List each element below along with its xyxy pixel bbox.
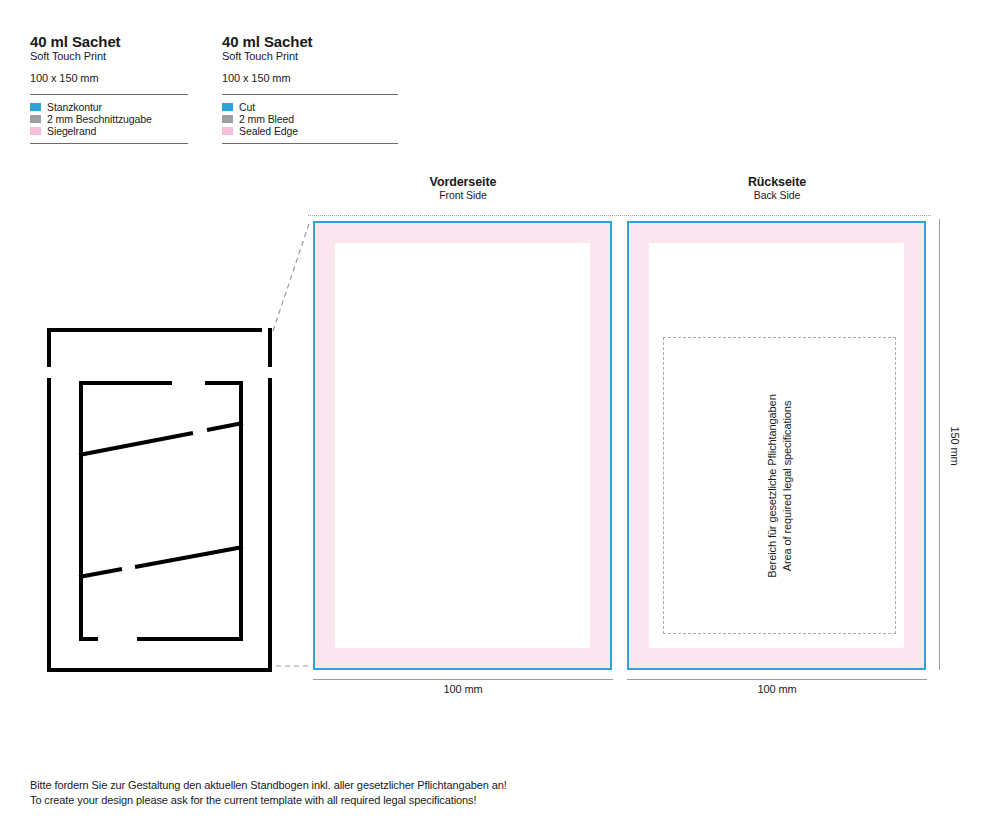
legal-label-de: Bereich für gesetzliche Pflichtangaben [764,394,779,577]
seal-color-chip [222,127,233,135]
divider [30,143,188,144]
divider [222,94,398,95]
front-panel [313,221,612,670]
legend-item-label: Siegelrand [47,125,96,137]
front-title-de: Vorderseite [313,175,613,189]
template-sheet: 40 ml Sachet Soft Touch Print 100 x 150 … [0,0,1000,840]
divider [30,94,188,95]
print-finish: Soft Touch Print [30,50,188,63]
cut-color-chip [30,103,41,111]
legal-area-label: Bereich für gesetzliche Pflichtangaben A… [764,394,794,577]
bleed-dotted-line [308,215,931,216]
legend-english: 40 ml Sachet Soft Touch Print 100 x 150 … [222,33,398,144]
legal-specifications-area: Bereich für gesetzliche Pflichtangaben A… [663,337,896,634]
footer-note-de: Bitte fordern Sie zur Gestaltung den akt… [30,778,507,793]
sachet-dieline-drawing [40,200,320,680]
product-title: 40 ml Sachet [30,33,188,50]
format-size: 100 x 150 mm [222,72,398,85]
legend-item-bleed: 2 mm Bleed [222,113,398,125]
front-width-label: 100 mm [313,683,613,695]
seal-color-chip [30,127,41,135]
legend-item-label: Cut [239,101,255,113]
back-width-label: 100 mm [627,683,927,695]
back-width-dimension-line [627,679,927,680]
legend-item-seal: Siegelrand [30,125,188,137]
legend-german: 40 ml Sachet Soft Touch Print 100 x 150 … [30,33,188,144]
legend-item-label: 2 mm Bleed [239,113,294,125]
cut-color-chip [222,103,233,111]
legend-item-cut: Cut [222,101,398,113]
front-panel-header: Vorderseite Front Side [313,175,613,201]
format-size: 100 x 150 mm [30,72,188,85]
legend-item-label: 2 mm Beschnittzugabe [47,113,152,125]
back-title-de: Rückseite [627,175,927,189]
legend-item-bleed: 2 mm Beschnittzugabe [30,113,188,125]
legend-item-label: Stanzkontur [47,101,102,113]
legend-item-label: Sealed Edge [239,125,298,137]
print-finish: Soft Touch Print [222,50,398,63]
height-label-wrap: 150 mm [939,221,971,670]
height-label: 150 mm [949,426,961,465]
front-width-dimension-line [313,679,613,680]
projection-lines [273,221,310,666]
back-panel: Bereich für gesetzliche Pflichtangaben A… [627,221,926,670]
back-panel-header: Rückseite Back Side [627,175,927,201]
legend-item-cut: Stanzkontur [30,101,188,113]
legal-label-en: Area of required legal specifications [779,394,794,577]
divider [222,143,398,144]
bleed-color-chip [222,115,233,123]
front-title-en: Front Side [313,189,613,201]
bleed-color-chip [30,115,41,123]
front-print-area [335,243,590,648]
legend-items: Stanzkontur 2 mm Beschnittzugabe Siegelr… [30,101,188,137]
back-title-en: Back Side [627,189,927,201]
product-title: 40 ml Sachet [222,33,398,50]
footer-note: Bitte fordern Sie zur Gestaltung den akt… [30,778,507,807]
footer-note-en: To create your design please ask for the… [30,793,507,808]
legend-item-seal: Sealed Edge [222,125,398,137]
back-print-area: Bereich für gesetzliche Pflichtangaben A… [649,243,904,648]
legend-items: Cut 2 mm Bleed Sealed Edge [222,101,398,137]
